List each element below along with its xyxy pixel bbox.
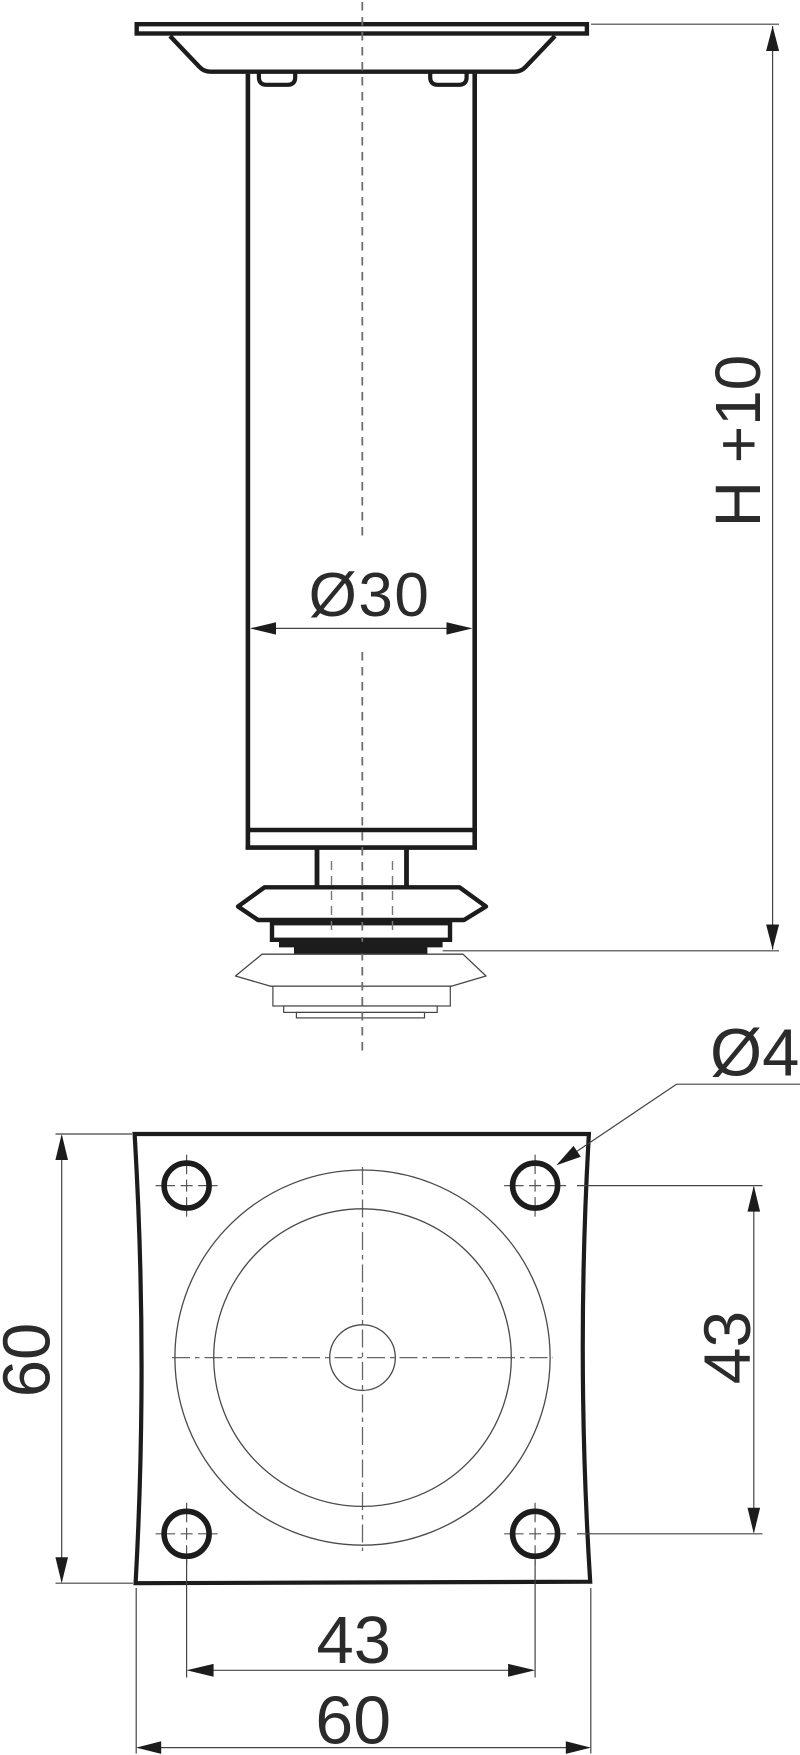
svg-text:43: 43 [317,1603,392,1678]
svg-text:Ø4: Ø4 [710,1015,799,1090]
svg-text:43: 43 [690,1311,764,1384]
svg-text:H +10: H +10 [702,355,774,528]
svg-text:60: 60 [315,1683,391,1755]
svg-text:60: 60 [0,1323,64,1398]
svg-text:Ø30: Ø30 [309,561,431,630]
